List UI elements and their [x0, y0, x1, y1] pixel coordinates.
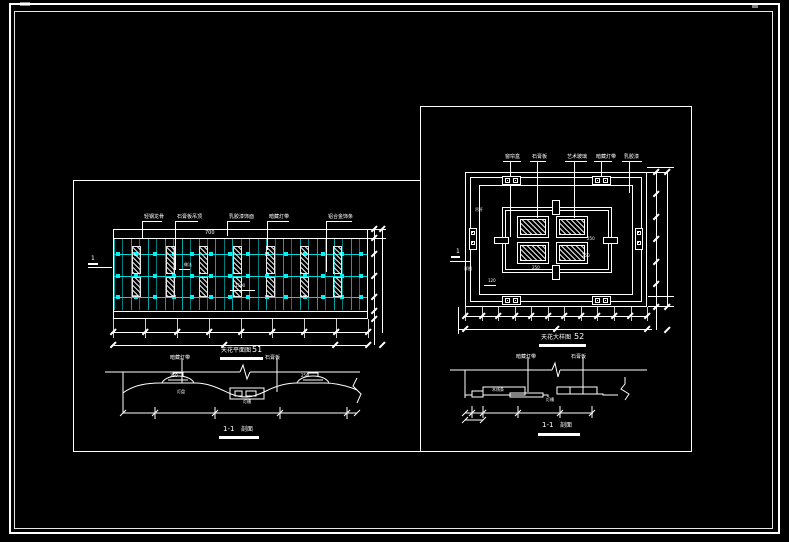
leader-line [530, 161, 546, 162]
section-flag-bar [88, 263, 98, 265]
grid-dot [228, 274, 232, 278]
section-annotation: 石膏板 [571, 355, 586, 360]
hatch-panel [199, 246, 208, 274]
hatch-panel [266, 277, 275, 297]
grid-dot [359, 274, 363, 278]
leader-line [142, 221, 162, 222]
dim-text: 1500 [235, 284, 245, 288]
hatch-panel [199, 277, 208, 297]
bracket-dot [472, 242, 473, 243]
trough-label: 灯槽 [243, 400, 251, 404]
dim-text: 120 [488, 279, 496, 283]
section-annotation: 暗藏灯带 [516, 355, 536, 360]
leader-line [574, 161, 575, 218]
grid-vline [182, 239, 183, 310]
vent-dot [515, 300, 516, 301]
leader-line [622, 161, 642, 162]
grid-dot [228, 295, 232, 299]
vent-dot [605, 300, 606, 301]
dim-line [667, 172, 668, 307]
grid-dot [153, 274, 157, 278]
connector-tab [494, 237, 509, 244]
step-label: 灯槽 [546, 398, 554, 402]
plan-annotation: 乳胶漆饰面 [229, 215, 254, 220]
vent-dot [597, 180, 598, 181]
leader-line [175, 221, 198, 222]
hatch-panel [166, 246, 175, 274]
bracket-dot [472, 232, 473, 233]
dome-light-fixture [162, 373, 194, 383]
grid-dot [284, 295, 288, 299]
dim-text: 250 [587, 237, 595, 241]
hatch-panel [166, 277, 175, 297]
grid-dot [246, 274, 250, 278]
plan-annotation: 暗藏灯带 [269, 215, 289, 220]
note-text: 做法 [184, 263, 192, 267]
drawing-title-number: 51 [252, 346, 262, 354]
grid-vline [351, 239, 352, 310]
hatch-panel [300, 277, 309, 297]
grid-dot [246, 295, 250, 299]
step-hatch [570, 387, 583, 394]
grid-vline [291, 239, 292, 310]
dim-line [484, 285, 496, 286]
leader-line [503, 161, 521, 162]
dim-line [465, 316, 647, 317]
grid-dot [246, 252, 250, 256]
section-flag-bar [451, 256, 460, 258]
section-title-suffix: 剖面 [560, 423, 572, 429]
plan-annotation: 艺术玻璃 [567, 155, 587, 160]
grid-dot [116, 274, 120, 278]
break-symbol [240, 365, 250, 379]
drawing-title-number: 52 [574, 333, 584, 341]
drawing-title: 天花平面图 [221, 348, 251, 354]
curved-ceiling-profile [123, 383, 357, 397]
note-text: 详图 [464, 267, 472, 271]
light-panel-inner [520, 219, 546, 235]
vent-dot [507, 180, 508, 181]
leader-line [326, 221, 327, 272]
leader-line [142, 221, 143, 239]
grid-dot [116, 295, 120, 299]
section-annotation: 暗藏灯带 [170, 356, 190, 361]
grid-dot [190, 252, 194, 256]
dim-line [374, 229, 375, 345]
hatch-panel [300, 246, 309, 274]
note-line [179, 269, 190, 270]
light-panel-inner [520, 245, 546, 261]
plan-annotation: 窗帘盒 [505, 155, 520, 160]
dim-ext [458, 307, 459, 334]
grid-dot [153, 295, 157, 299]
grid-vline [148, 239, 149, 310]
step-box [557, 387, 597, 394]
leader-line [227, 221, 228, 236]
right-section-drawing [440, 353, 700, 445]
grid-dot [321, 274, 325, 278]
vent-dot [507, 300, 508, 301]
connector-tab [603, 237, 618, 244]
vent-dot [597, 300, 598, 301]
section-cut-line [88, 267, 112, 268]
dim-line [230, 290, 255, 291]
leader-line [594, 161, 612, 162]
molding-hatch [472, 391, 483, 397]
grid-vline [258, 239, 259, 310]
leader-line [227, 221, 250, 222]
section-flag: 1 [456, 249, 460, 255]
note-text: 吊杆 [475, 208, 483, 212]
dim-text: 250 [301, 374, 309, 378]
grid-dot [359, 252, 363, 256]
grid-dot [284, 274, 288, 278]
hatch-panel [333, 277, 342, 297]
hatch-panel [132, 277, 141, 297]
drawing-title: 天花大样图 [541, 335, 571, 341]
grid-dot [190, 295, 194, 299]
vent-dot [605, 180, 606, 181]
plan-band-line [113, 311, 368, 312]
section-title: 1-1 [223, 426, 234, 433]
dim-line [113, 345, 368, 346]
corner-mark [20, 2, 30, 6]
light-panel-inner [559, 219, 585, 235]
break-symbol [552, 363, 560, 377]
hatch-panel [333, 246, 342, 274]
section-cut-line [450, 261, 471, 262]
hatch-panel [233, 246, 242, 274]
plan-annotation: 轻钢龙骨 [144, 215, 164, 220]
dim-line [462, 417, 486, 423]
step-box [483, 387, 525, 395]
section-flag: 1 [91, 256, 95, 262]
grid-vline [224, 239, 225, 310]
grid-dot [116, 252, 120, 256]
connector-tab [552, 265, 560, 280]
leader-line [267, 221, 289, 222]
leader-line [537, 161, 538, 218]
bracket-dot [638, 242, 639, 243]
title-underline [539, 344, 586, 347]
grid-dot [284, 252, 288, 256]
section-annotation: 石膏板 [265, 356, 280, 361]
leader-line [326, 221, 352, 222]
leader-line [175, 221, 176, 270]
dim-ext [648, 296, 674, 297]
hatch-panel [266, 246, 275, 274]
dim-ext [472, 406, 592, 418]
plan-annotation: 乳胶漆 [624, 155, 639, 160]
grid-dot [228, 252, 232, 256]
fixture-label: 灯盘 [177, 390, 185, 394]
leader-line [267, 221, 268, 250]
title-underline [219, 436, 259, 439]
dim-text: 250 [532, 266, 540, 270]
profile-line [597, 394, 618, 395]
grid-dot [209, 274, 213, 278]
grid-dot [153, 252, 157, 256]
grid-dot [321, 295, 325, 299]
dim-text: 250 [170, 374, 178, 378]
dim-ext [648, 306, 674, 307]
cad-drawing-canvas: 轻钢龙骨 石膏板吊顶 乳胶漆饰面 暗藏灯带 铝合金饰条 700 1 做法 150… [0, 0, 789, 542]
vent-dot [515, 180, 516, 181]
leader-line [565, 161, 587, 162]
section-title: 1-1 [542, 422, 553, 429]
bracket-dot [638, 232, 639, 233]
title-underline [538, 433, 580, 436]
connector-tab [552, 200, 560, 215]
break-symbol [621, 377, 629, 400]
grid-vline [215, 239, 216, 310]
plan-annotation: 暗藏灯带 [596, 155, 616, 160]
corner-mark [752, 5, 758, 8]
plan-annotation: 石膏板吊顶 [177, 215, 202, 220]
grid-dot [321, 252, 325, 256]
plan-annotation: 石膏板 [532, 155, 547, 160]
grid-dot [209, 252, 213, 256]
dim-line [382, 229, 383, 333]
hatch-panel [132, 246, 141, 274]
break-symbol [353, 378, 361, 403]
leader-line [629, 161, 630, 193]
plan-annotation: 铝合金饰条 [328, 215, 353, 220]
section-title-suffix: 剖面 [241, 427, 253, 433]
leader-line [510, 161, 511, 237]
grid-dot [209, 295, 213, 299]
leader-line [182, 358, 277, 392]
step-label: 木线条 [492, 388, 504, 392]
grid-dot [359, 295, 363, 299]
dim-text: 700 [205, 231, 215, 236]
dim-ext [647, 167, 674, 168]
light-panel-inner [559, 245, 585, 261]
grid-vline [317, 239, 318, 310]
grid-vline [122, 239, 123, 310]
grid-dot [190, 274, 194, 278]
ceiling-grid [114, 239, 367, 310]
